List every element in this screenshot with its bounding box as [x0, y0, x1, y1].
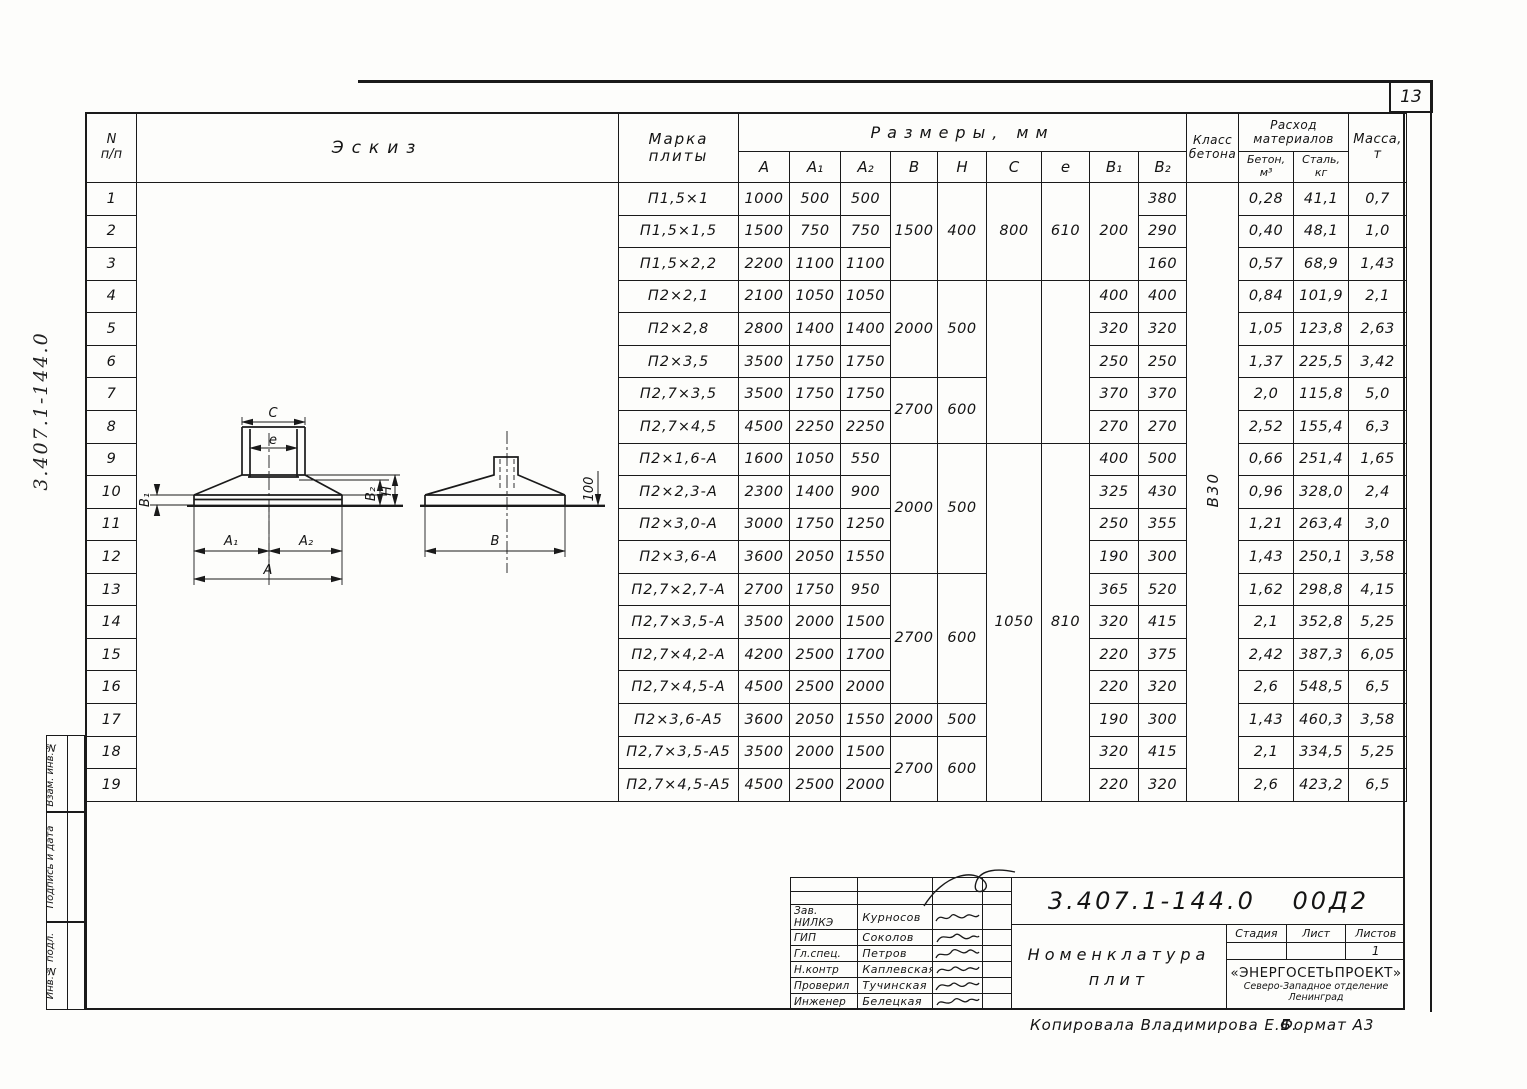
concrete-class-label: В30: [1204, 472, 1222, 507]
signature-row: Инженер Белецкая: [791, 994, 1011, 1010]
row-number: 6: [87, 345, 137, 378]
row-number: 7: [87, 378, 137, 411]
dim-b1: 190: [1090, 541, 1139, 574]
signature-scribble: [933, 946, 984, 961]
col-header-klass: Класс бетона: [1187, 114, 1239, 183]
page-number: 13: [1400, 87, 1422, 107]
dim-a1: 2000: [790, 606, 841, 639]
side-doc-number: 3.407.1-144.0: [30, 326, 56, 496]
dim-a2: 1050: [841, 280, 891, 313]
sig-name: Петров: [858, 946, 932, 961]
concrete-volume: 2,1: [1239, 736, 1294, 769]
dim-b2: 320: [1139, 671, 1187, 704]
dim-b: 2000: [891, 704, 938, 737]
dim-a1: 2500: [790, 769, 841, 802]
dim-a: 3500: [739, 736, 790, 769]
row-number: 1: [87, 183, 137, 216]
concrete-volume: 1,37: [1239, 345, 1294, 378]
row-number: 2: [87, 215, 137, 248]
table-body: 1П1,5×110005005001500400800610200380В300…: [87, 183, 1407, 802]
steel-weight: 423,2: [1294, 769, 1349, 802]
dim-b2: 250: [1139, 345, 1187, 378]
dim-a1: 1100: [790, 248, 841, 281]
col-header-a2: А₂: [841, 152, 891, 183]
plate-mark: П2,7×2,7-А: [619, 573, 739, 606]
steel-weight: 251,4: [1294, 443, 1349, 476]
dim-b1: 220: [1090, 769, 1139, 802]
plate-mark: П2,7×3,5-А: [619, 606, 739, 639]
sig-role: Н.контр: [791, 962, 858, 977]
dim-c: [987, 280, 1042, 443]
dim-a2: 2000: [841, 769, 891, 802]
dim-b1: 250: [1090, 345, 1139, 378]
mass: 1,65: [1349, 443, 1407, 476]
steel-weight: 123,8: [1294, 313, 1349, 346]
dim-a1: 2250: [790, 410, 841, 443]
mass: 3,0: [1349, 508, 1407, 541]
right-frame-line: [1430, 80, 1432, 1012]
signature-block: Зав. НИЛКЭ Курносов ГИП Соколов Гл.спец.…: [791, 878, 1011, 1010]
dim-a: 2100: [739, 280, 790, 313]
signature-scribble: [933, 962, 984, 977]
mass: 3,42: [1349, 345, 1407, 378]
concrete-volume: 0,84: [1239, 280, 1294, 313]
row-number: 14: [87, 606, 137, 639]
dim-b2: 375: [1139, 638, 1187, 671]
mass: 0,7: [1349, 183, 1407, 216]
dim-b1: 320: [1090, 736, 1139, 769]
doc-number: 3.407.1-144.0 00Д2: [1012, 878, 1405, 925]
col-header-stal: Сталь, кг: [1294, 152, 1349, 183]
dim-a: 3600: [739, 541, 790, 574]
steel-weight: 68,9: [1294, 248, 1349, 281]
col-header-rashod: Расход материалов: [1239, 114, 1349, 152]
sheet-frame: N п/п Эскиз Марка плиты Размеры, мм Клас…: [85, 112, 1405, 1010]
row-number: 4: [87, 280, 137, 313]
steel-weight: 460,3: [1294, 704, 1349, 737]
dim-a1: 2000: [790, 736, 841, 769]
nomenclature-table: N п/п Эскиз Марка плиты Размеры, мм Клас…: [86, 113, 1407, 802]
sig-role: Зав. НИЛКЭ: [791, 905, 858, 929]
plate-mark: П2,7×4,5-А5: [619, 769, 739, 802]
sheet-title: Номенклатура плит: [1012, 925, 1227, 1010]
dim-a: 2800: [739, 313, 790, 346]
sig-name: Курносов: [858, 905, 932, 929]
dim-a: 1600: [739, 443, 790, 476]
mass: 4,15: [1349, 573, 1407, 606]
dim-a1: 2050: [790, 541, 841, 574]
signature-scribble: [933, 978, 984, 993]
concrete-volume: 0,57: [1239, 248, 1294, 281]
concrete-volume: 1,62: [1239, 573, 1294, 606]
dim-b2: 320: [1139, 769, 1187, 802]
dim-b1: 270: [1090, 410, 1139, 443]
dim-a2: 1550: [841, 541, 891, 574]
dim-b1: 190: [1090, 704, 1139, 737]
dim-a2: 1400: [841, 313, 891, 346]
dim-a: 4500: [739, 769, 790, 802]
col-header-beton: Бетон, м³: [1239, 152, 1294, 183]
steel-weight: 387,3: [1294, 638, 1349, 671]
organization: «ЭНЕРГОСЕТЬПРОЕКТ» Северо-Западное отдел…: [1227, 960, 1405, 1010]
plate-mark: П2×3,0-А: [619, 508, 739, 541]
row-number: 11: [87, 508, 137, 541]
dim-a2: 1100: [841, 248, 891, 281]
dim-b: 2700: [891, 573, 938, 703]
dim-h: 500: [938, 704, 987, 737]
mass: 6,5: [1349, 769, 1407, 802]
dim-b1: 250: [1090, 508, 1139, 541]
row-number: 19: [87, 769, 137, 802]
dim-a: 4200: [739, 638, 790, 671]
signature-row: Гл.спец. Петров: [791, 946, 1011, 962]
plate-mark: П2,7×3,5-А5: [619, 736, 739, 769]
row-number: 15: [87, 638, 137, 671]
dim-a2: 1250: [841, 508, 891, 541]
dim-a1: 750: [790, 215, 841, 248]
row-number: 12: [87, 541, 137, 574]
signature-row: Зав. НИЛКЭ Курносов: [791, 905, 1011, 930]
dim-b1: 200: [1090, 183, 1139, 281]
steel-weight: 298,8: [1294, 573, 1349, 606]
concrete-volume: 1,43: [1239, 541, 1294, 574]
dim-b2: 400: [1139, 280, 1187, 313]
dim-a1: 2500: [790, 671, 841, 704]
steel-weight: 41,1: [1294, 183, 1349, 216]
dim-c: 800: [987, 183, 1042, 281]
dim-h: 600: [938, 736, 987, 801]
dim-a: 4500: [739, 410, 790, 443]
concrete-volume: 0,96: [1239, 476, 1294, 509]
margin-column: Взам. инв.№ Подпись и дата Инв.№ подл.: [46, 735, 85, 1010]
dim-a1: 1400: [790, 313, 841, 346]
dim-b2: 370: [1139, 378, 1187, 411]
dim-a1: 1750: [790, 508, 841, 541]
dim-a2: 500: [841, 183, 891, 216]
mass: 1,0: [1349, 215, 1407, 248]
dim-a2: 2000: [841, 671, 891, 704]
concrete-class: В30: [1187, 183, 1239, 802]
dim-a2: 750: [841, 215, 891, 248]
dim-a2: 1700: [841, 638, 891, 671]
dim-h: 400: [938, 183, 987, 281]
concrete-volume: 2,42: [1239, 638, 1294, 671]
signature-row: Н.контр Каплевская: [791, 962, 1011, 978]
dim-a: 1000: [739, 183, 790, 216]
sheets-label: Листов: [1346, 925, 1405, 942]
stage-value: [1227, 943, 1287, 959]
stage-label: Стадия: [1227, 925, 1287, 942]
dim-b2: 300: [1139, 541, 1187, 574]
mass: 1,43: [1349, 248, 1407, 281]
dim-b1: 370: [1090, 378, 1139, 411]
plate-mark: П2×2,3-А: [619, 476, 739, 509]
concrete-volume: 2,1: [1239, 606, 1294, 639]
dim-e: 810: [1042, 443, 1090, 801]
margin-label: Инв.№ подл.: [45, 933, 67, 999]
mass: 2,63: [1349, 313, 1407, 346]
format-label: Формат А3: [1280, 1016, 1374, 1034]
mass: 5,0: [1349, 378, 1407, 411]
row-number: 5: [87, 313, 137, 346]
col-header-b1: В₁: [1090, 152, 1139, 183]
sketch-cell: [137, 183, 619, 802]
col-header-h: Н: [938, 152, 987, 183]
signature-row: ГИП Соколов: [791, 930, 1011, 946]
dim-b: 2700: [891, 736, 938, 801]
dim-e: 610: [1042, 183, 1090, 281]
sheet-label: Лист: [1287, 925, 1347, 942]
dim-a1: 1750: [790, 573, 841, 606]
sig-name: Тучинская: [858, 978, 932, 993]
drawing-sheet: 13 3.407.1-144.0 Взам. инв.№ Подпись и д…: [0, 0, 1527, 1089]
dim-b: 1500: [891, 183, 938, 281]
plate-mark: П2×1,6-А: [619, 443, 739, 476]
dim-b: 2000: [891, 280, 938, 378]
stage-block: Стадия Лист Листов 1 «ЭНЕРГОСЕТЬПРОЕКТ» …: [1227, 925, 1405, 1010]
col-header-b2: В₂: [1139, 152, 1187, 183]
concrete-volume: 2,6: [1239, 769, 1294, 802]
plate-mark: П2×3,5: [619, 345, 739, 378]
signature-scribble: [933, 905, 984, 929]
sig-role: Инженер: [791, 994, 858, 1009]
dim-b2: 430: [1139, 476, 1187, 509]
steel-weight: 101,9: [1294, 280, 1349, 313]
plate-mark: П2×3,6-А5: [619, 704, 739, 737]
plate-mark: П2,7×4,5: [619, 410, 739, 443]
plate-mark: П2×2,8: [619, 313, 739, 346]
col-header-eskiz: Эскиз: [137, 114, 619, 183]
margin-box-podpis: Подпись и дата: [46, 812, 85, 922]
plate-mark: П1,5×2,2: [619, 248, 739, 281]
mass: 6,05: [1349, 638, 1407, 671]
signature-scribble: [933, 994, 984, 1009]
plate-mark: П2,7×3,5: [619, 378, 739, 411]
dim-a: 3600: [739, 704, 790, 737]
dim-b2: 500: [1139, 443, 1187, 476]
dim-h: 600: [938, 573, 987, 703]
dim-a: 3500: [739, 378, 790, 411]
col-header-a1: А₁: [790, 152, 841, 183]
steel-weight: 334,5: [1294, 736, 1349, 769]
margin-box-vzam: Взам. инв.№: [46, 735, 85, 812]
sig-name: Каплевская: [858, 962, 932, 977]
col-header-massa: Масса, т: [1349, 114, 1407, 183]
dim-a: 2700: [739, 573, 790, 606]
dim-h: 500: [938, 443, 987, 573]
dim-a1: 500: [790, 183, 841, 216]
dim-a2: 950: [841, 573, 891, 606]
dim-a1: 1400: [790, 476, 841, 509]
dim-a2: 1750: [841, 345, 891, 378]
sig-name: Белецкая: [858, 994, 932, 1009]
title-block-right: 3.407.1-144.0 00Д2 Номенклатура плит Ста…: [1011, 878, 1405, 1010]
dim-a: 3000: [739, 508, 790, 541]
dim-a1: 1750: [790, 378, 841, 411]
concrete-volume: 1,43: [1239, 704, 1294, 737]
concrete-volume: 0,28: [1239, 183, 1294, 216]
table-header: N п/п Эскиз Марка плиты Размеры, мм Клас…: [87, 114, 1407, 183]
dim-a: 4500: [739, 671, 790, 704]
dim-b2: 270: [1139, 410, 1187, 443]
concrete-volume: 0,66: [1239, 443, 1294, 476]
mass: 5,25: [1349, 606, 1407, 639]
dim-b2: 290: [1139, 215, 1187, 248]
dim-a: 2200: [739, 248, 790, 281]
dim-a2: 550: [841, 443, 891, 476]
dim-b2: 520: [1139, 573, 1187, 606]
steel-weight: 548,5: [1294, 671, 1349, 704]
page-number-box: 13: [1389, 81, 1433, 113]
dim-a2: 1550: [841, 704, 891, 737]
plate-mark: П2,7×4,2-А: [619, 638, 739, 671]
dim-a2: 1500: [841, 736, 891, 769]
sig-role: Проверил: [791, 978, 858, 993]
steel-weight: 352,8: [1294, 606, 1349, 639]
dim-b2: 355: [1139, 508, 1187, 541]
sheets-value: 1: [1346, 943, 1405, 959]
concrete-volume: 2,0: [1239, 378, 1294, 411]
row-number: 18: [87, 736, 137, 769]
steel-weight: 48,1: [1294, 215, 1349, 248]
dim-b2: 320: [1139, 313, 1187, 346]
col-header-c: С: [987, 152, 1042, 183]
sig-name: Соколов: [858, 930, 932, 945]
dim-b2: 300: [1139, 704, 1187, 737]
mass: 2,1: [1349, 280, 1407, 313]
dim-b1: 320: [1090, 313, 1139, 346]
dim-a1: 1750: [790, 345, 841, 378]
row-number: 10: [87, 476, 137, 509]
col-header-razmery: Размеры, мм: [739, 114, 1187, 152]
signature-scribble: [933, 930, 984, 945]
plate-mark: П1,5×1,5: [619, 215, 739, 248]
mass: 6,5: [1349, 671, 1407, 704]
dim-a: 1500: [739, 215, 790, 248]
row-number: 16: [87, 671, 137, 704]
mass: 3,58: [1349, 541, 1407, 574]
steel-weight: 155,4: [1294, 410, 1349, 443]
dim-b1: 400: [1090, 280, 1139, 313]
dim-a: 2300: [739, 476, 790, 509]
col-header-e: е: [1042, 152, 1090, 183]
dim-e: [1042, 280, 1090, 443]
dim-c: 1050: [987, 443, 1042, 801]
dim-a2: 1750: [841, 378, 891, 411]
copied-by: Копировала Владимирова Е.Б.: [1030, 1016, 1298, 1034]
mass: 2,4: [1349, 476, 1407, 509]
dim-a1: 1050: [790, 443, 841, 476]
concrete-volume: 2,6: [1239, 671, 1294, 704]
dim-a: 3500: [739, 345, 790, 378]
plate-mark: П2×3,6-А: [619, 541, 739, 574]
dim-b1: 220: [1090, 638, 1139, 671]
sig-role: Гл.спец.: [791, 946, 858, 961]
col-header-n: N п/п: [87, 114, 137, 183]
dim-b1: 220: [1090, 671, 1139, 704]
dim-h: 500: [938, 280, 987, 378]
plate-mark: П2,7×4,5-А: [619, 671, 739, 704]
dim-b1: 320: [1090, 606, 1139, 639]
row-number: 17: [87, 704, 137, 737]
plate-mark: П1,5×1: [619, 183, 739, 216]
concrete-volume: 1,21: [1239, 508, 1294, 541]
sig-role: ГИП: [791, 930, 858, 945]
dim-a2: 900: [841, 476, 891, 509]
dim-b2: 380: [1139, 183, 1187, 216]
dim-a: 3500: [739, 606, 790, 639]
steel-weight: 328,0: [1294, 476, 1349, 509]
dim-a1: 2050: [790, 704, 841, 737]
table-row: 1П1,5×110005005001500400800610200380В300…: [87, 183, 1407, 216]
top-frame-line: [358, 80, 1433, 83]
dim-b1: 400: [1090, 443, 1139, 476]
steel-weight: 250,1: [1294, 541, 1349, 574]
dim-a2: 1500: [841, 606, 891, 639]
mass: 3,58: [1349, 704, 1407, 737]
plate-mark: П2×2,1: [619, 280, 739, 313]
dim-a1: 1050: [790, 280, 841, 313]
margin-label: Взам. инв.№: [45, 741, 67, 806]
concrete-volume: 1,05: [1239, 313, 1294, 346]
dim-b1: 325: [1090, 476, 1139, 509]
dim-h: 600: [938, 378, 987, 443]
sheet-value: [1287, 943, 1347, 959]
row-number: 9: [87, 443, 137, 476]
dim-b2: 160: [1139, 248, 1187, 281]
title-block: Зав. НИЛКЭ Курносов ГИП Соколов Гл.спец.…: [790, 877, 1405, 1010]
dim-b2: 415: [1139, 736, 1187, 769]
margin-label: Подпись и дата: [45, 826, 67, 909]
dim-a1: 2500: [790, 638, 841, 671]
steel-weight: 115,8: [1294, 378, 1349, 411]
row-number: 8: [87, 410, 137, 443]
col-header-marka: Марка плиты: [619, 114, 739, 183]
dim-b: 2700: [891, 378, 938, 443]
steel-weight: 225,5: [1294, 345, 1349, 378]
dim-b2: 415: [1139, 606, 1187, 639]
col-header-b: В: [891, 152, 938, 183]
steel-weight: 263,4: [1294, 508, 1349, 541]
dim-a2: 2250: [841, 410, 891, 443]
dim-b: 2000: [891, 443, 938, 573]
margin-box-inv: Инв.№ подл.: [46, 922, 85, 1010]
signature-row: Проверил Тучинская: [791, 978, 1011, 994]
row-number: 3: [87, 248, 137, 281]
concrete-volume: 2,52: [1239, 410, 1294, 443]
mass: 5,25: [1349, 736, 1407, 769]
col-header-a: А: [739, 152, 790, 183]
mass: 6,3: [1349, 410, 1407, 443]
concrete-volume: 0,40: [1239, 215, 1294, 248]
dim-b1: 365: [1090, 573, 1139, 606]
row-number: 13: [87, 573, 137, 606]
